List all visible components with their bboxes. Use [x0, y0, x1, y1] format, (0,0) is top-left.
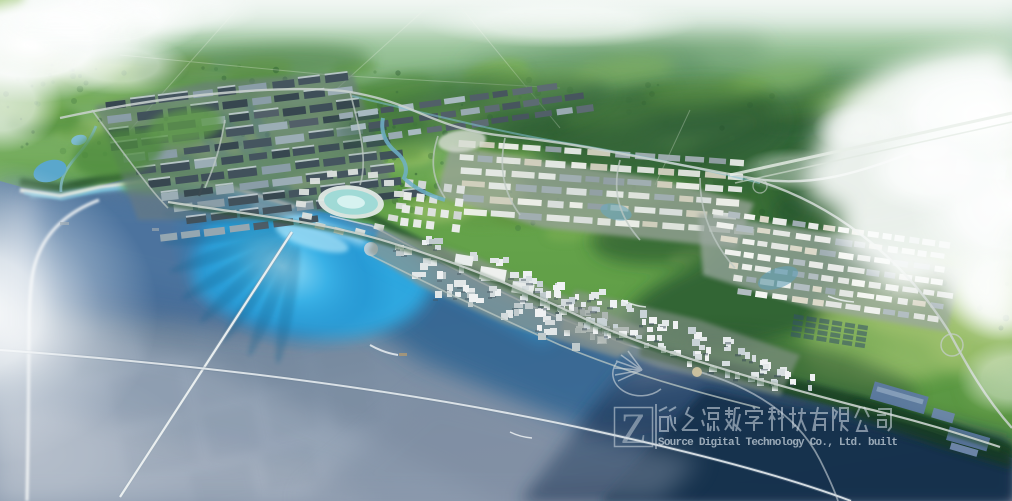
svg-text:Z: Z: [620, 406, 646, 453]
svg-text:Source Digital Technology Co.,: Source Digital Technology Co., Ltd. buil…: [658, 437, 898, 449]
